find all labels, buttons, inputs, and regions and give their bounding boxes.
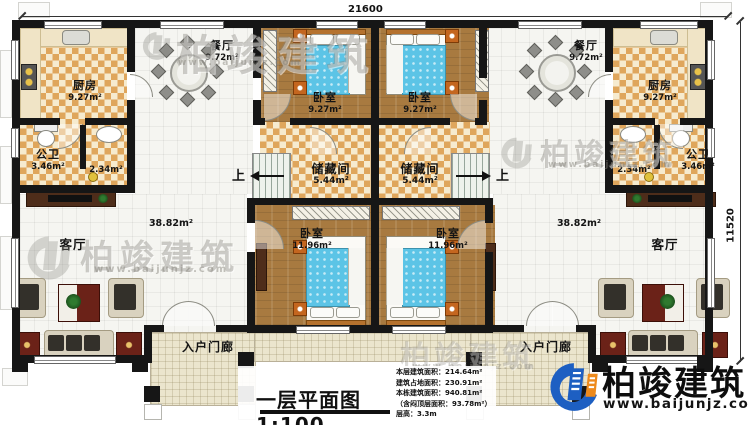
bed-blanket <box>402 45 446 95</box>
wall <box>369 198 493 205</box>
stair-arrow-head <box>482 171 491 181</box>
stove <box>690 64 706 90</box>
window <box>518 21 582 29</box>
room-area: 3.46m² <box>674 162 722 172</box>
wardrobe <box>292 206 370 220</box>
room-name: 公卫 <box>24 149 72 162</box>
room-label-dining-right: 餐厅 9.72m² <box>556 40 616 63</box>
dimension-right-label: 11520 <box>726 201 737 251</box>
info-line: 层高：3.3m <box>396 409 506 420</box>
sofa-cushion <box>48 335 64 351</box>
bed-throw <box>386 45 403 93</box>
room-label-bedroom-bottom-left: 卧室 11.96m² <box>282 228 342 251</box>
info-line: 本栋建筑面积：940.81m² <box>396 388 506 399</box>
plant <box>66 294 81 309</box>
stair-arrow <box>456 175 482 177</box>
info-line: 建筑占地面积：230.91m² <box>396 378 506 389</box>
room-name: 卧室 <box>282 228 342 241</box>
watermark-website: www.baijunjz.com <box>548 160 672 170</box>
room-area: 2.34m² <box>80 165 132 175</box>
wall <box>144 325 164 332</box>
stove <box>21 64 37 90</box>
wall <box>127 28 135 72</box>
wall <box>485 252 493 333</box>
room-name: 入户门廊 <box>162 340 254 354</box>
wall <box>475 118 487 125</box>
room-name: 客厅 <box>640 238 690 253</box>
wall <box>605 185 713 193</box>
watermark-website: www.baijunjz.com <box>178 58 302 68</box>
floor-plan: 上 上 厨房 9.27m² 餐厅 9.72m² 公卫 3.46m² 2.34m²… <box>0 0 750 425</box>
room-label-bedroom-bottom-right: 卧室 11.96m² <box>418 228 478 251</box>
title-underline <box>260 410 390 414</box>
room-label-kitchen-left: 厨房 9.27m² <box>55 80 115 103</box>
window <box>707 40 715 80</box>
room-area: 5.44m² <box>385 176 455 187</box>
building-info: 本层建筑面积：214.64m² 建筑占地面积：230.91m² 本栋建筑面积：9… <box>396 367 506 420</box>
tv <box>48 195 92 202</box>
room-name: 储藏间 <box>296 162 366 176</box>
kitchen-sink <box>62 30 90 45</box>
wall <box>290 118 371 125</box>
plant <box>98 194 108 203</box>
wall <box>247 198 371 205</box>
room-area: 9.27m² <box>295 105 355 115</box>
column-base <box>144 404 162 420</box>
wall <box>85 118 135 125</box>
bed-throw <box>386 248 403 305</box>
watermark-text: 柏竣建筑 <box>176 22 376 83</box>
column <box>144 386 160 402</box>
room-label-storage-right: 储藏间 5.44m² <box>385 162 455 187</box>
wall <box>247 205 255 223</box>
nightstand <box>445 302 459 316</box>
window <box>11 40 19 80</box>
dimension-line-right <box>740 22 741 362</box>
stair-arrow-head <box>250 171 259 181</box>
dresser <box>256 243 267 291</box>
wardrobe <box>382 206 460 220</box>
wall <box>479 28 487 78</box>
watermark-logo-icon <box>138 24 174 68</box>
room-label-bath2-left: 2.34m² <box>80 165 132 175</box>
armchair-cushion <box>604 284 626 310</box>
sofa-cushion <box>668 335 684 351</box>
wash-basin <box>96 126 122 143</box>
room-area: 9.27m² <box>630 93 690 103</box>
stair-arrow <box>258 175 284 177</box>
wall <box>247 252 255 333</box>
pillow <box>336 307 360 318</box>
window <box>11 128 19 158</box>
toilet <box>37 130 55 147</box>
sofa-cushion <box>66 335 82 351</box>
room-name: 卧室 <box>295 92 355 105</box>
column <box>132 356 148 372</box>
pillow <box>310 307 334 318</box>
room-name: 公卫 <box>674 149 722 162</box>
window <box>11 238 19 308</box>
wall <box>369 118 450 125</box>
sofa-cushion <box>84 335 100 351</box>
window <box>34 356 116 364</box>
wall <box>680 118 713 125</box>
kitchen-sink <box>650 30 678 45</box>
room-name: 餐厅 <box>556 40 616 53</box>
room-area: 3.46m² <box>24 162 72 172</box>
room-area: 38.82m² <box>548 218 610 229</box>
room-name: 储藏间 <box>385 162 455 176</box>
sofa-cushion <box>650 335 666 351</box>
column <box>12 356 28 372</box>
watermark-website: www.baijunjz.com <box>94 264 228 275</box>
bed-throw <box>348 248 365 305</box>
info-line: （含闷顶层面积：93.78m²） <box>396 399 506 410</box>
pillow <box>416 34 440 45</box>
watermark-logo-icon <box>20 226 76 290</box>
brand-logo-icon <box>542 354 604 420</box>
room-area: 11.96m² <box>282 241 342 251</box>
watermark-logo-icon <box>496 126 536 180</box>
room-area: 38.82m² <box>140 218 202 229</box>
dimension-line-top <box>22 16 728 17</box>
plan-title: 一层平面图1:100 <box>256 384 416 425</box>
bed-blanket <box>306 248 350 307</box>
room-label-porch-left: 入户门廊 <box>162 340 254 354</box>
room-area: 9.27m² <box>55 93 115 103</box>
wall <box>605 118 655 125</box>
bed-blanket <box>402 248 446 307</box>
window <box>640 21 698 29</box>
room-label-bedroom-top-right: 卧室 9.27m² <box>390 92 450 115</box>
wall <box>80 125 86 169</box>
wall <box>493 325 524 332</box>
room-area: 9.27m² <box>390 105 450 115</box>
pillow <box>390 307 414 318</box>
armchair-cushion <box>114 284 136 310</box>
room-area: 5.44m² <box>296 176 366 187</box>
plant <box>660 294 675 309</box>
nightstand <box>293 302 307 316</box>
info-line: 本层建筑面积：214.64m² <box>396 367 506 378</box>
wall <box>485 205 493 223</box>
wall <box>576 325 596 332</box>
dimension-top-label: 21600 <box>346 4 385 15</box>
pillow <box>416 307 440 318</box>
room-label-living-right: 客厅 <box>640 238 690 253</box>
plant <box>632 194 642 203</box>
wall <box>216 325 247 332</box>
wall <box>20 118 60 125</box>
room-name: 卧室 <box>390 92 450 105</box>
living-right-area: 38.82m² <box>548 218 610 229</box>
wall <box>12 185 135 193</box>
window <box>707 238 715 308</box>
window <box>44 21 102 29</box>
room-name: 厨房 <box>55 80 115 93</box>
living-left-area: 38.82m² <box>140 218 202 229</box>
room-name: 厨房 <box>630 80 690 93</box>
wall <box>253 118 265 125</box>
tv <box>648 195 692 202</box>
room-label-bedroom-top-left: 卧室 9.27m² <box>295 92 355 115</box>
room-label-bath-right: 公卫 3.46m² <box>674 149 722 172</box>
room-label-bath-left: 公卫 3.46m² <box>24 149 72 172</box>
wall <box>127 100 135 193</box>
nightstand <box>445 29 459 43</box>
room-label-kitchen-right: 厨房 9.27m² <box>630 80 690 103</box>
pillow <box>390 34 414 45</box>
room-area: 11.96m² <box>418 241 478 251</box>
brand-website: www.baijunjz.com <box>603 396 750 412</box>
room-name: 卧室 <box>418 228 478 241</box>
window <box>384 21 426 29</box>
sofa-cushion <box>632 335 648 351</box>
room-label-storage-left: 储藏间 5.44m² <box>296 162 366 187</box>
stairs-up-label: 上 <box>232 165 245 184</box>
window <box>296 326 350 334</box>
room-area: 9.72m² <box>556 53 616 63</box>
